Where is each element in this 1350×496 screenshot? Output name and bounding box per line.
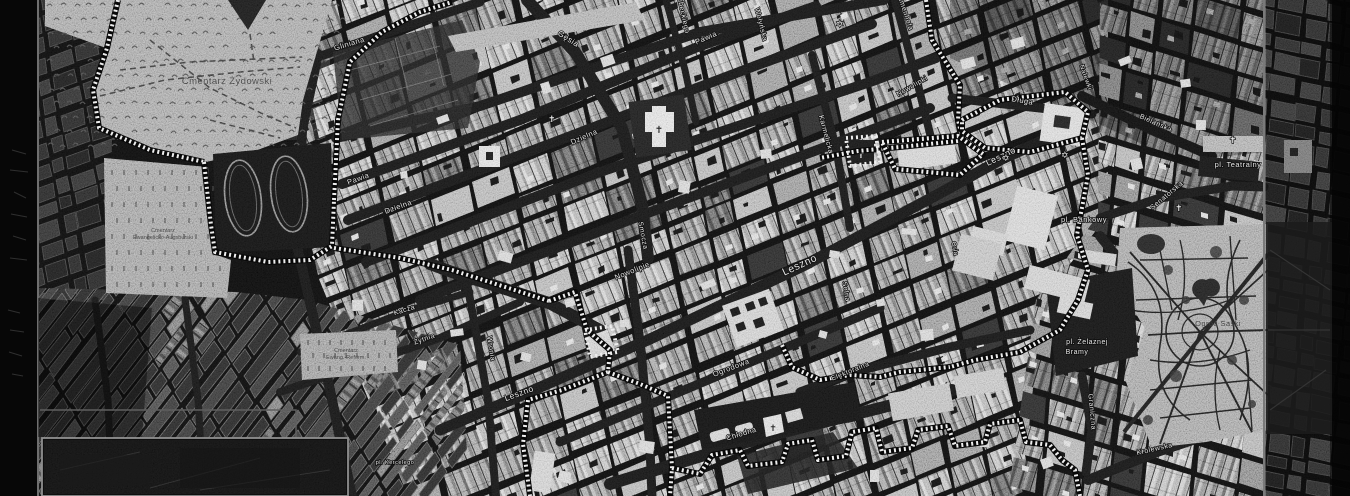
svg-text:Bramy: Bramy [1066,349,1089,356]
svg-text:pl. Żelaznej: pl. Żelaznej [1066,337,1108,346]
svg-text:pl. Kercelego: pl. Kercelego [376,460,415,466]
svg-text:✡: ✡ [836,19,844,29]
svg-text:pl. Teatralny: pl. Teatralny [1215,160,1262,169]
svg-text:✝: ✝ [1175,203,1183,213]
svg-text:✡: ✡ [1061,150,1069,160]
svg-text:✝: ✝ [548,114,556,124]
svg-text:pl. Bankowy: pl. Bankowy [1061,215,1107,224]
svg-text:✡: ✡ [1002,153,1010,163]
svg-text:✝: ✝ [1229,135,1237,145]
